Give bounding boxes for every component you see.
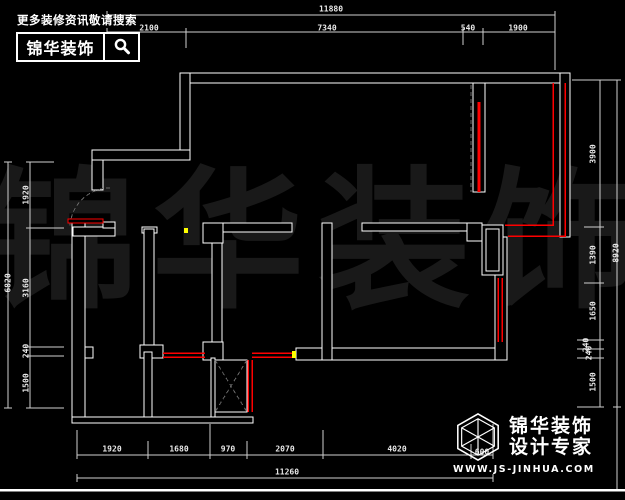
dim-label: 540 bbox=[461, 24, 475, 33]
search-icon bbox=[103, 34, 138, 60]
footer-logo: 锦华装饰 设计专家 WWW.JS-JINHUA.COM bbox=[453, 412, 623, 475]
dim-label: 1920 bbox=[102, 445, 121, 454]
dim-label: 7340 bbox=[317, 24, 336, 33]
dim-label: 1920 bbox=[22, 185, 31, 204]
dim-label: 970 bbox=[221, 445, 235, 454]
dim-label: 1680 bbox=[169, 445, 188, 454]
footer-brand-line2: 设计专家 bbox=[509, 437, 593, 458]
dim-label: 3900 bbox=[589, 144, 598, 163]
dim-label: 1900 bbox=[508, 24, 527, 33]
dim-label: 2070 bbox=[275, 445, 294, 454]
brand-search-box: 锦华装饰 bbox=[16, 32, 140, 62]
dim-label: 4020 bbox=[387, 445, 406, 454]
dim-label: 11260 bbox=[275, 468, 299, 477]
dim-label: 1500 bbox=[22, 373, 31, 392]
dashed-details bbox=[70, 85, 471, 412]
dim-label: 8920 bbox=[612, 243, 621, 262]
dim-label: 3160 bbox=[22, 278, 31, 297]
yellow-markers bbox=[184, 228, 296, 358]
bottom-border-line bbox=[0, 489, 625, 492]
walls bbox=[72, 73, 570, 423]
dim-label: 6820 bbox=[4, 273, 13, 292]
dim-label: 1390 bbox=[589, 245, 598, 264]
brand-logo-text: 锦华装饰 bbox=[18, 34, 103, 60]
dim-label: 2100 bbox=[139, 24, 158, 33]
dim-label: 240 bbox=[585, 346, 594, 360]
dim-label: 11880 bbox=[319, 5, 343, 14]
hexagon-cube-icon bbox=[453, 412, 503, 462]
floor-plan-page: 锦华装饰 bbox=[0, 0, 625, 500]
footer-brand-line1: 锦华装饰 bbox=[509, 416, 593, 437]
search-hint-text: 更多装修资讯敬请搜索 bbox=[17, 12, 137, 28]
footer-website: WWW.JS-JINHUA.COM bbox=[453, 464, 623, 475]
dim-label: 1500 bbox=[589, 372, 598, 391]
dim-label: 240 bbox=[22, 344, 31, 358]
dim-label: 1650 bbox=[589, 301, 598, 320]
